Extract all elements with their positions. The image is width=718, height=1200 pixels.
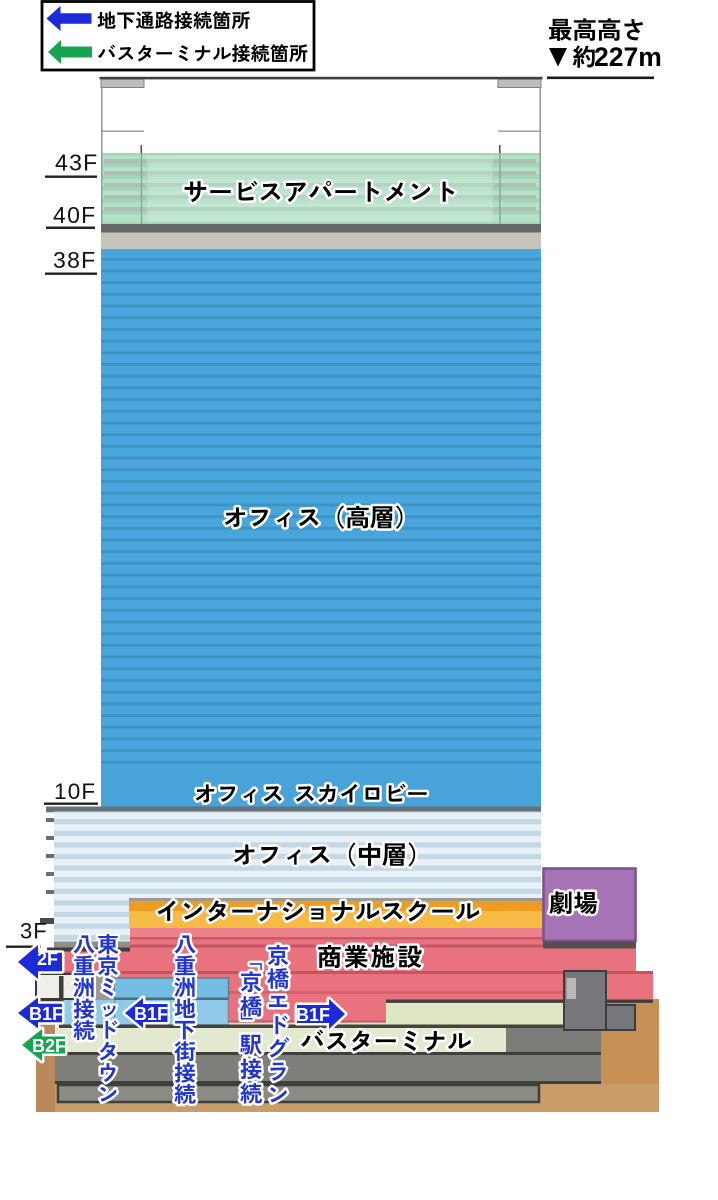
svg-text:227m: 227m bbox=[594, 42, 662, 72]
svg-text:B1F: B1F bbox=[134, 1004, 168, 1024]
svg-text:40F: 40F bbox=[53, 202, 97, 228]
svg-text:B1F: B1F bbox=[296, 1005, 330, 1025]
svg-text:10F: 10F bbox=[54, 779, 96, 804]
svg-text:B1F: B1F bbox=[29, 1004, 63, 1024]
svg-text:38F: 38F bbox=[53, 247, 97, 273]
svg-text:43F: 43F bbox=[55, 150, 99, 176]
svg-text:2F: 2F bbox=[37, 949, 58, 969]
svg-text:3F: 3F bbox=[20, 919, 48, 944]
svg-text:B2F: B2F bbox=[32, 1036, 66, 1056]
